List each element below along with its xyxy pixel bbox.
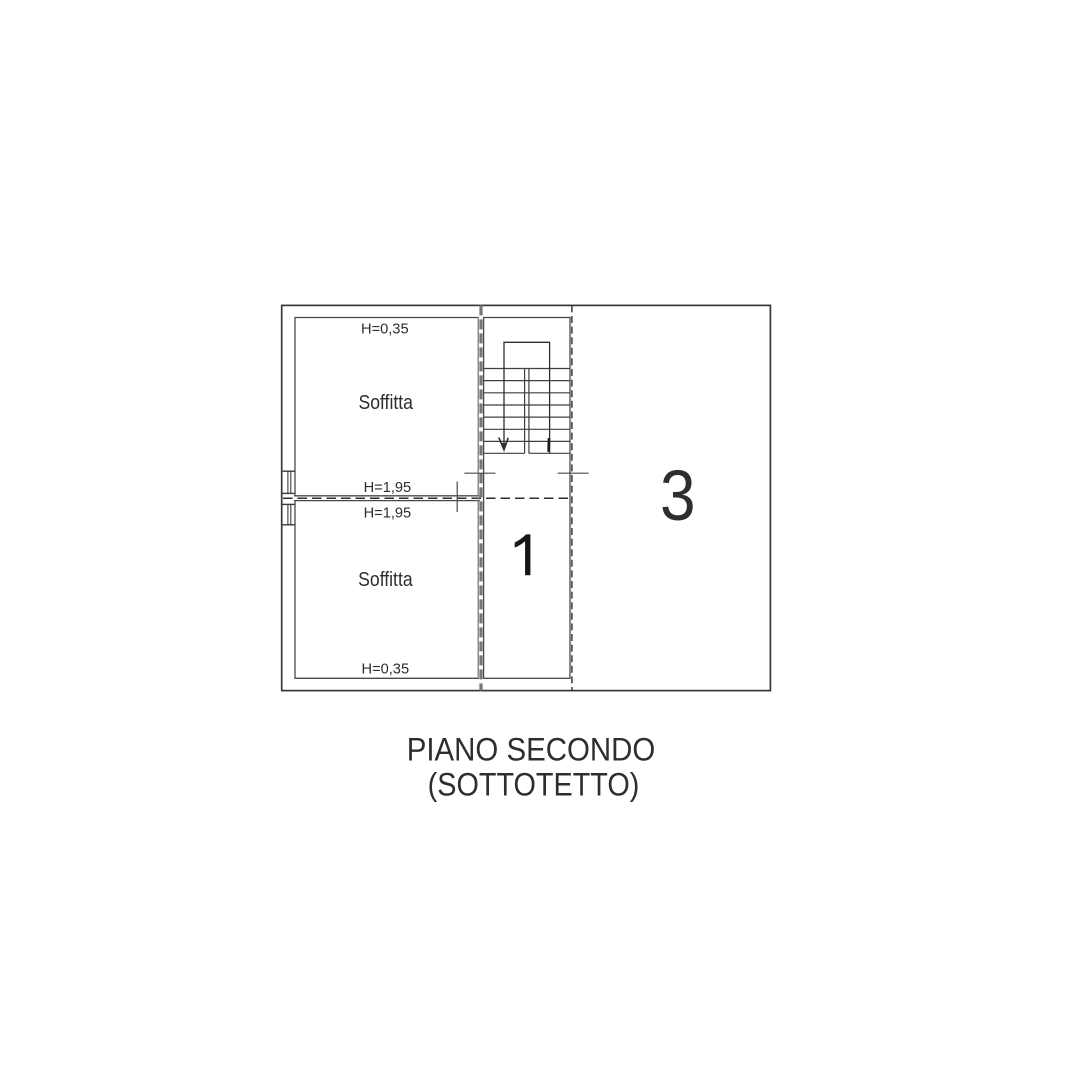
svg-text:H=1,95: H=1,95 <box>364 480 412 496</box>
svg-text:3: 3 <box>660 457 696 536</box>
svg-text:Soffitta: Soffitta <box>358 568 413 590</box>
svg-text:H=0,35: H=0,35 <box>361 321 409 337</box>
svg-text:H=0,35: H=0,35 <box>361 661 409 677</box>
svg-text:PIANO SECONDO: PIANO SECONDO <box>407 731 656 767</box>
svg-text:Soffitta: Soffitta <box>358 391 413 413</box>
svg-text:(SOTTOTETTO): (SOTTOTETTO) <box>428 767 640 803</box>
svg-text:H=1,95: H=1,95 <box>364 505 412 521</box>
